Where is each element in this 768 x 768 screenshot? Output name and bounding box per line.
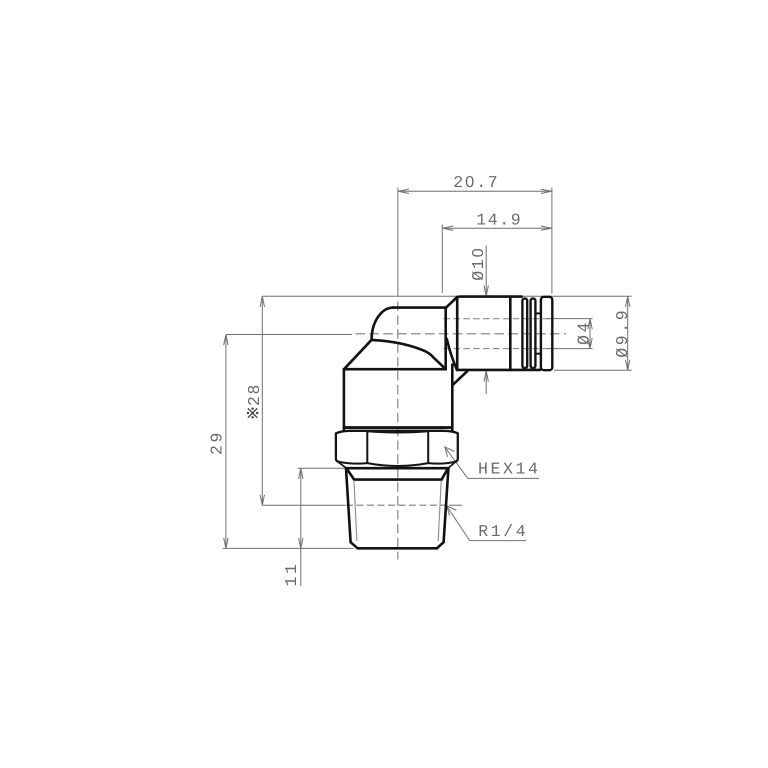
svg-text:29: 29 xyxy=(208,430,227,455)
svg-text:Ø9.9: Ø9.9 xyxy=(613,308,632,358)
svg-text:11: 11 xyxy=(282,561,301,586)
svg-text:20.7: 20.7 xyxy=(453,173,499,192)
svg-text:R1/4: R1/4 xyxy=(478,522,528,541)
svg-text:HEX14: HEX14 xyxy=(478,459,541,478)
svg-text:28: 28 xyxy=(245,383,264,406)
svg-text:14.9: 14.9 xyxy=(476,211,522,230)
svg-text:Ø4: Ø4 xyxy=(575,320,594,345)
